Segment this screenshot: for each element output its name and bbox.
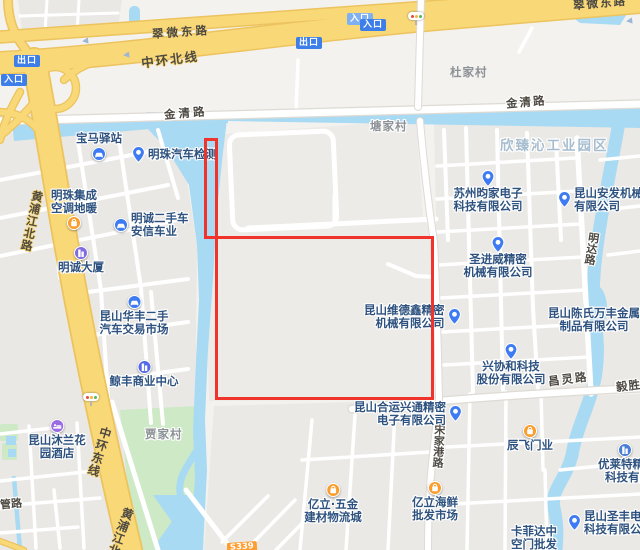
route-shield-s339: S339 — [227, 541, 258, 550]
highlight-rectangle-large — [215, 236, 434, 400]
poi-label: 亿立海鲜 — [412, 496, 458, 509]
direction-arrow-icon: ◀ — [625, 16, 632, 26]
road-label-guanlu: 光管路 — [0, 495, 23, 514]
location-pin-icon[interactable] — [568, 514, 581, 531]
poi-label: 空门批发 — [511, 538, 557, 550]
traffic-light-icon — [83, 393, 99, 401]
poi-label: 科技有限公司 — [605, 471, 640, 484]
poi-item[interactable]: 卡菲达中 空门批发 — [511, 525, 557, 550]
poi-label: 优莱特精密 — [598, 458, 640, 471]
highlight-rectangle-small — [204, 138, 218, 239]
hotel-icon[interactable] — [50, 419, 64, 433]
entrance-badge: 入口 — [360, 19, 386, 31]
location-pin-icon[interactable] — [505, 343, 518, 360]
poi-item[interactable]: 鲸丰商业中心 — [110, 360, 179, 388]
poi-label: 昆山安发机械 — [574, 187, 640, 200]
poi-item[interactable]: 昆山安发机械 有限公司 — [558, 187, 640, 212]
poi-item[interactable] — [618, 443, 632, 457]
poi-label: 批发市场 — [412, 509, 458, 522]
poi-item[interactable]: 昆山陈氏万丰金属 制品有限公司 — [548, 307, 640, 332]
exit-badge: 出口 — [14, 55, 40, 67]
poi-label: 卡菲达中 — [511, 525, 557, 538]
poi-label: 制品有限公司 — [560, 320, 629, 333]
poi-item[interactable]: 辰飞门业 — [507, 424, 553, 452]
company-icon[interactable] — [618, 443, 632, 457]
village-label-dujiacun: 杜家村 — [450, 64, 488, 80]
poi-label: 昆山圣丰电子 — [584, 510, 640, 523]
poi-item[interactable]: 圣进威精密 机械有限公司 — [464, 236, 533, 278]
traffic-light-icon — [408, 12, 424, 20]
shop-icon[interactable] — [428, 481, 442, 495]
poi-item[interactable]: 昆山圣丰电子 科技有限公司 — [568, 510, 640, 535]
poi-item[interactable]: 明珠集成 空调地暖 — [51, 189, 97, 230]
poi-item[interactable]: 宝马驿站 — [76, 132, 122, 161]
poi-item[interactable]: 昆山沐兰花 园酒店 — [28, 419, 86, 459]
poi-label: 亿立·五金 — [308, 498, 358, 511]
poi-item[interactable]: 昆山华丰二手 汽车交易市场 — [100, 295, 169, 335]
shop-icon[interactable] — [523, 424, 537, 438]
location-pin-icon[interactable] — [448, 308, 461, 325]
poi-label: 宝马驿站 — [76, 132, 122, 145]
location-pin-icon[interactable] — [492, 236, 505, 253]
direction-arrow-icon: ◀ — [81, 36, 88, 46]
poi-item[interactable]: 亿立海鲜 批发市场 — [412, 481, 458, 521]
location-pin-icon[interactable] — [558, 191, 571, 208]
poi-label: 建材物流城 — [304, 511, 362, 524]
poi-label: 苏州昀家电子 — [454, 187, 523, 200]
poi-item[interactable]: 苏州昀家电子 科技有限公司 — [454, 170, 523, 212]
entrance-badge: 入口 — [1, 74, 27, 86]
road-label-yishenglu: 毅胜路 — [615, 375, 640, 395]
poi-item[interactable]: 兴协和科技 股份有限公司 — [477, 343, 546, 385]
village-label-jiajiacun: 贾家村 — [145, 426, 183, 442]
poi-label: 圣进威精密 — [469, 253, 527, 266]
poi-label: 昆山沐兰花 — [28, 434, 86, 447]
poi-label: 鲸丰商业中心 — [110, 375, 179, 388]
direction-arrow-icon: ◀ — [122, 50, 129, 60]
village-label-tangjiacun: 塘家村 — [370, 118, 408, 134]
poi-label: 辰飞门业 — [507, 439, 553, 452]
exit-badge: 出口 — [296, 37, 322, 49]
location-pin-icon[interactable] — [449, 405, 462, 422]
map-canvas[interactable]: 翠微东路 翠微东路 中环北线 金清路 金清路 黄浦江北路 中环东线 黄浦江北路 … — [0, 0, 640, 550]
area-label-industrial-park: 欣臻沁工业园区 — [500, 134, 609, 154]
poi-label: 昆山陈氏万丰金属 — [548, 307, 640, 320]
car-icon[interactable] — [127, 295, 141, 309]
poi-label: 兴协和科技 — [482, 360, 540, 373]
poi-label: 明珠集成 — [51, 189, 97, 202]
location-pin-icon[interactable] — [482, 170, 495, 187]
location-pin-icon[interactable] — [132, 146, 145, 163]
shop-icon[interactable] — [326, 483, 340, 497]
poi-label: 空调地暖 — [51, 202, 97, 215]
poi-label: 昆山华丰二手 — [100, 310, 169, 323]
car-icon[interactable] — [92, 147, 106, 161]
poi-label: 明诚大厦 — [58, 261, 104, 274]
poi-label: 电子有限公司 — [354, 414, 446, 427]
poi-item[interactable]: 优莱特精密 科技有限公司 — [598, 458, 640, 483]
poi-label: 园酒店 — [40, 447, 75, 460]
poi-item[interactable]: 明诚大厦 — [58, 246, 104, 274]
poi-label: 有限公司 — [574, 200, 640, 213]
poi-label: 昆山合运兴通精密 — [354, 401, 446, 414]
poi-item[interactable]: 昆山合运兴通精密 电子有限公司 — [354, 401, 462, 426]
shop-icon[interactable] — [67, 216, 81, 230]
building-icon[interactable] — [137, 360, 151, 374]
building-icon[interactable] — [74, 246, 88, 260]
poi-item[interactable]: 亿立·五金 建材物流城 — [304, 483, 362, 523]
poi-label: 机械有限公司 — [464, 266, 533, 279]
poi-label: 科技有限公司 — [454, 200, 523, 213]
road-label-songjiaganglu: 宋家港路 — [429, 424, 447, 469]
poi-label: 科技有限公司 — [584, 523, 640, 536]
poi-label: 安信车业 — [131, 225, 189, 238]
car-icon[interactable] — [114, 218, 128, 232]
poi-label: 汽车交易市场 — [100, 323, 169, 336]
poi-label: 股份有限公司 — [477, 373, 546, 386]
poi-label: 明诚二手车 — [131, 212, 189, 225]
poi-item[interactable]: 明诚二手车 安信车业 — [114, 212, 189, 237]
